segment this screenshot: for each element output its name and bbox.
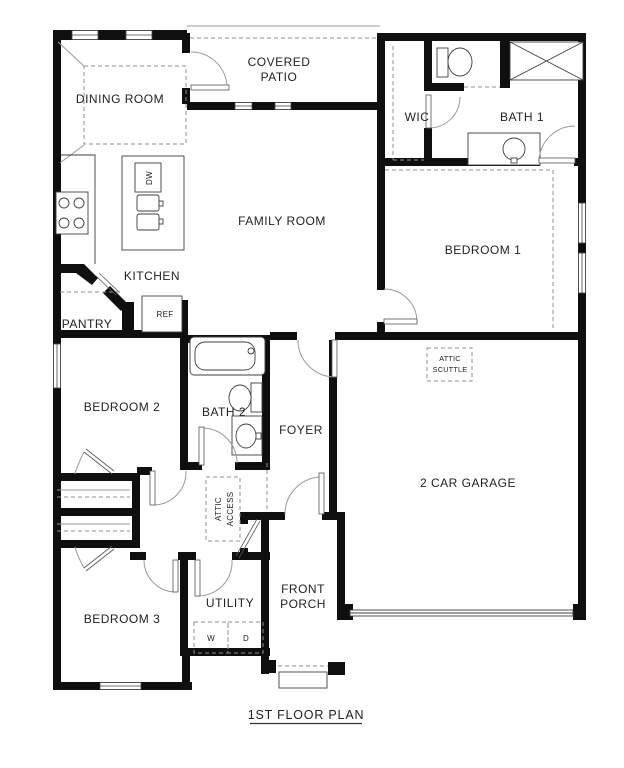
dashed-detail-lines: [57, 38, 553, 666]
label-dishwasher: DW: [145, 171, 154, 185]
label-covered-patio: COVERED: [248, 55, 311, 69]
sink: [236, 424, 256, 448]
label-foyer: FOYER: [279, 423, 323, 437]
label-kitchen: KITCHEN: [124, 269, 180, 283]
label-dining-room: DINING ROOM: [76, 92, 164, 106]
label-front-porch: PORCH: [280, 597, 326, 611]
fixture-labels: DW REF W D ATTIC SCUTTLE ATTIC ACCESS: [145, 171, 467, 643]
label-bedroom-1: BEDROOM 1: [445, 243, 522, 257]
label-attic-scuttle: ATTIC: [439, 354, 461, 363]
stove: [56, 192, 88, 234]
exterior-fixtures: [279, 610, 573, 688]
label-front-porch: FRONT: [281, 582, 325, 596]
label-bath-2: BATH 2: [202, 405, 246, 419]
toilet-tank: [251, 383, 262, 412]
floor-plan-page: DINING ROOM COVERED PATIO WIC BATH 1 FAM…: [0, 0, 624, 768]
sink-bowl: [137, 195, 159, 211]
plan-title: 1ST FLOOR PLAN: [248, 708, 365, 722]
label-pantry: PANTRY: [62, 317, 113, 331]
toilet-bowl: [448, 48, 472, 76]
label-dryer: D: [243, 634, 249, 643]
label-washer: W: [207, 634, 215, 643]
toilet-tank: [437, 48, 448, 77]
plan-title-group: 1ST FLOOR PLAN: [248, 708, 365, 724]
label-utility: UTILITY: [206, 596, 254, 610]
sink-bowl: [137, 214, 159, 230]
label-wic: WIC: [405, 110, 430, 124]
label-covered-patio: PATIO: [261, 70, 298, 84]
label-garage: 2 CAR GARAGE: [420, 476, 516, 490]
label-bedroom-3: BEDROOM 3: [84, 612, 161, 626]
label-attic-access: ATTIC: [214, 497, 223, 521]
label-family-room: FAMILY ROOM: [238, 214, 326, 228]
label-attic-access: ACCESS: [226, 492, 235, 527]
label-refrigerator: REF: [157, 310, 174, 319]
label-bedroom-2: BEDROOM 2: [84, 400, 161, 414]
sink: [503, 138, 525, 160]
label-bath-1: BATH 1: [500, 110, 544, 124]
floor-plan-drawing: DINING ROOM COVERED PATIO WIC BATH 1 FAM…: [0, 0, 624, 768]
label-attic-scuttle: SCUTTLE: [433, 365, 468, 374]
walkway: [279, 672, 327, 688]
